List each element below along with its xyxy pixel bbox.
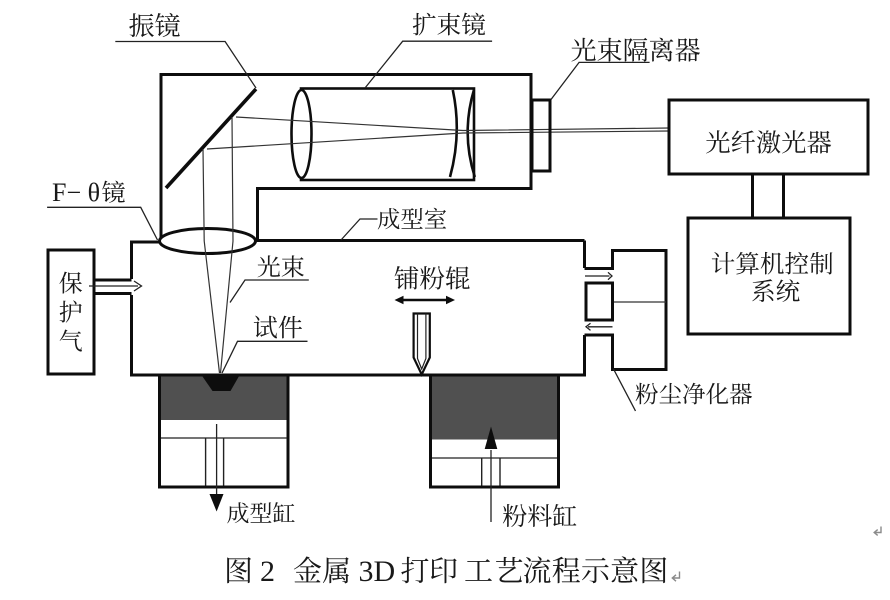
svg-text:2: 2 xyxy=(260,555,275,588)
svg-text:F− θ: F− θ xyxy=(52,178,100,207)
svg-text:3D: 3D xyxy=(359,555,396,588)
